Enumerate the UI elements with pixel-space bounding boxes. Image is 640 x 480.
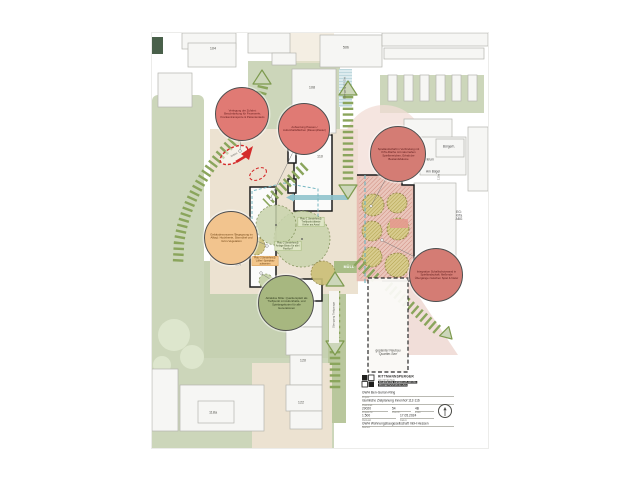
callout-forecourt: Gebäudevorzonen 'Begegnung im Alltag': H… xyxy=(204,211,258,265)
callout-forecourt-text: Gebäudevorzonen 'Begegnung im Alltag': H… xyxy=(208,233,254,243)
callout-playscape: Spiellandschaft in Verbindung mit KiTa-F… xyxy=(370,126,426,182)
callout-noise-text: Integration Schallschutzwand in Spiellan… xyxy=(413,270,459,280)
callout-pause-text: Aufwertung Pausen-/ Aufenthaltsflächen (… xyxy=(281,126,327,133)
plan-sheet: 104 50b 108 110 112 114 116 118 120 122 … xyxy=(152,33,488,448)
date-label: Datum xyxy=(400,419,407,422)
callout-centre-text: Attraktive Mitte: Quartiersplatz als Tre… xyxy=(263,296,309,309)
callout-noise: Integration Schallschutzwand in Spiellan… xyxy=(409,248,463,302)
scale-value: 1:500 xyxy=(362,414,370,418)
callout-access: Verlegung der Zufahrt: Beschränkung für … xyxy=(215,87,269,141)
callout-playscape-text: Spiellandschaft in Verbindung mit KiTa-F… xyxy=(375,147,421,160)
north-compass xyxy=(438,404,452,418)
north-arrow-icon xyxy=(439,406,451,418)
projnr-value: 29020 xyxy=(362,407,371,411)
scale-label: Maßstab xyxy=(362,419,371,422)
callout-centre: Attraktive Mitte: Quartiersplatz als Tre… xyxy=(258,275,314,331)
screenshot-canvas: 104 50b 108 110 112 114 116 118 120 122 … xyxy=(0,0,640,480)
planned-building-outline xyxy=(368,278,408,372)
index-value: 4B xyxy=(415,407,419,411)
plannr-value: 54 xyxy=(392,407,396,411)
callout-pause: Aufwertung Pausen-/ Aufenthaltsflächen (… xyxy=(278,103,330,155)
client-label: Bauherr xyxy=(362,426,370,429)
callout-access-text: Verlegung der Zufahrt: Beschränkung für … xyxy=(219,109,265,119)
site-map-graphics xyxy=(152,33,488,448)
client-value: GWH Wohnungsbaugesellschaft mbH Hessen xyxy=(362,422,429,426)
firm-line3: PROJEKTENTWICKLUNG xyxy=(378,384,408,387)
garage-strip xyxy=(329,291,339,343)
project-value: GWH Ben-Gurion-Ring xyxy=(362,391,395,395)
firm-name: RITTMANNSPERGER xyxy=(378,375,414,379)
date-value: 17.05.2024 xyxy=(400,414,416,418)
content-value: räumliche Zielplanung Innenhof 112-116 xyxy=(362,399,420,403)
